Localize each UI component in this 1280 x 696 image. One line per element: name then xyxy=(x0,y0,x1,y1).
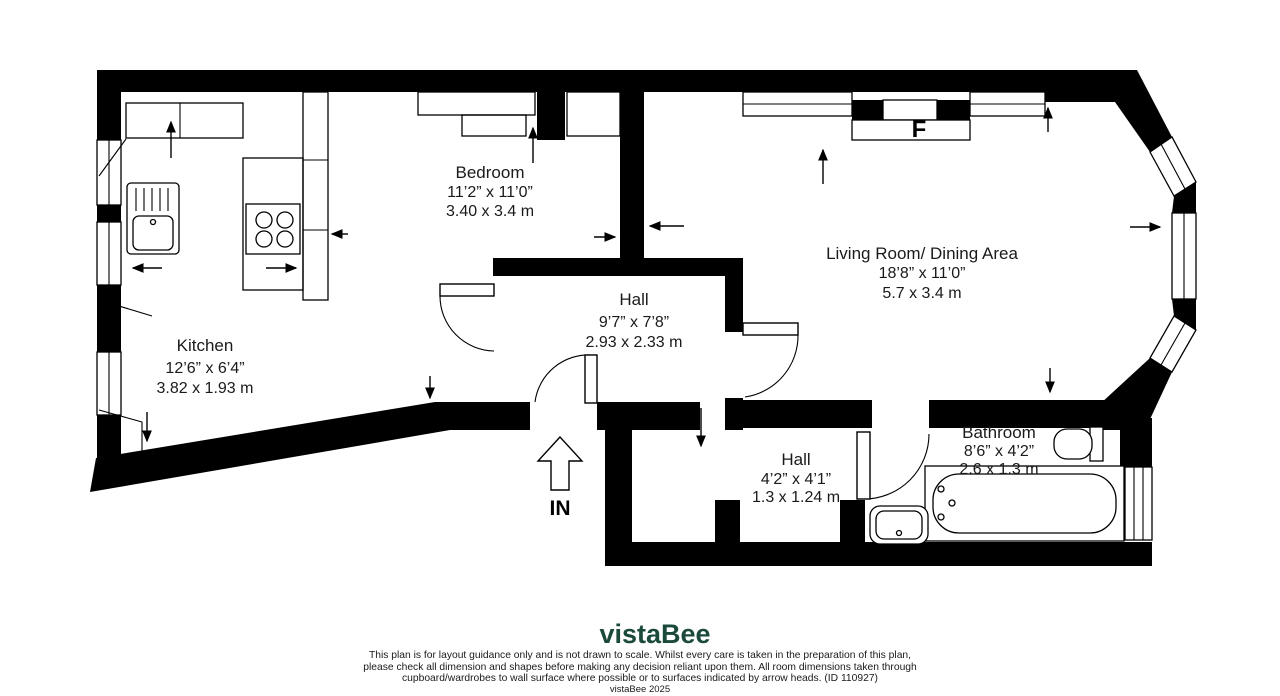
bedroom-door xyxy=(440,284,494,351)
footer: vistaBee This plan is for layout guidanc… xyxy=(363,619,917,695)
room-label-hall-2: Hall 4’2” x 4’1” 1.3 x 1.24 m xyxy=(752,450,840,506)
entrance-door xyxy=(535,355,597,403)
copyright-text: vistaBee 2025 xyxy=(610,684,670,695)
living-room-door xyxy=(743,323,798,397)
hall-2-imperial: 4’2” x 4’1” xyxy=(761,471,831,488)
entrance-label: IN xyxy=(550,497,571,520)
hall-name: Hall xyxy=(619,290,648,309)
floorplan-page: Kitchen 12’6” x 6’4” 3.82 x 1.93 m Bedro… xyxy=(0,0,1280,696)
bedroom-metric: 3.40 x 3.4 m xyxy=(446,203,534,220)
living-room-name: Living Room/ Dining Area xyxy=(826,244,1018,263)
bathroom-metric: 2.6 x 1.3 m xyxy=(959,461,1038,478)
doors xyxy=(440,284,929,499)
disclaimer-line-3: cupboard/wardrobes to wall surface where… xyxy=(402,673,878,684)
window-left-2 xyxy=(97,222,121,285)
room-label-kitchen: Kitchen 12’6” x 6’4” 3.82 x 1.93 m xyxy=(157,336,254,397)
disclaimer-line-2: please check all dimension and shapes be… xyxy=(363,662,917,673)
hall-2-name: Hall xyxy=(781,450,810,469)
living-room-imperial: 18’8” x 11’0” xyxy=(879,265,966,282)
window-living-2 xyxy=(970,92,1045,116)
kitchen-metric: 3.82 x 1.93 m xyxy=(157,380,254,397)
hall-2-metric: 1.3 x 1.24 m xyxy=(752,489,840,506)
room-label-hall: Hall 9’7” x 7’8” 2.93 x 2.33 m xyxy=(586,290,683,351)
window-bathroom xyxy=(1125,467,1152,540)
wardrobe xyxy=(418,92,620,136)
window-left-1 xyxy=(97,140,121,205)
room-label-bathroom: Bathroom 8’6” x 4’2” 2.6 x 1.3 m xyxy=(959,423,1038,478)
hob-icon xyxy=(246,204,300,254)
bathroom-imperial: 8’6” x 4’2” xyxy=(964,443,1034,460)
floor-plan: Kitchen 12’6” x 6’4” 3.82 x 1.93 m Bedro… xyxy=(0,0,1280,696)
bay-window-middle xyxy=(1172,213,1196,299)
bedroom-name: Bedroom xyxy=(456,163,525,182)
kitchen-imperial: 12’6” x 6’4” xyxy=(165,360,244,377)
kitchen-counter xyxy=(99,92,328,452)
hall-imperial: 9’7” x 7’8” xyxy=(599,314,669,331)
bedroom-imperial: 11’2” x 11’0” xyxy=(447,184,533,201)
dimension-arrows xyxy=(133,108,1160,446)
toilet-icon xyxy=(1054,427,1103,461)
window-left-3 xyxy=(97,352,121,415)
room-label-living-room: Living Room/ Dining Area 18’8” x 11’0” 5… xyxy=(826,244,1018,302)
vistabee-logo: vistaBee xyxy=(599,619,710,649)
bathroom-door xyxy=(857,432,929,499)
sink-icon xyxy=(127,183,179,254)
hall-metric: 2.93 x 2.33 m xyxy=(586,334,683,351)
entrance-arrow-icon xyxy=(538,437,582,490)
living-room-metric: 5.7 x 3.4 m xyxy=(882,285,961,302)
labels: Kitchen 12’6” x 6’4” 3.82 x 1.93 m Bedro… xyxy=(157,116,1039,520)
disclaimer-line-1: This plan is for layout guidance only an… xyxy=(369,650,911,661)
kitchen-name: Kitchen xyxy=(177,336,234,355)
fireplace-marker: F xyxy=(912,116,927,143)
room-label-bedroom: Bedroom 11’2” x 11’0” 3.40 x 3.4 m xyxy=(446,163,534,220)
basin-icon xyxy=(870,506,928,544)
window-living-1 xyxy=(743,92,852,116)
bathroom-name: Bathroom xyxy=(962,423,1036,442)
